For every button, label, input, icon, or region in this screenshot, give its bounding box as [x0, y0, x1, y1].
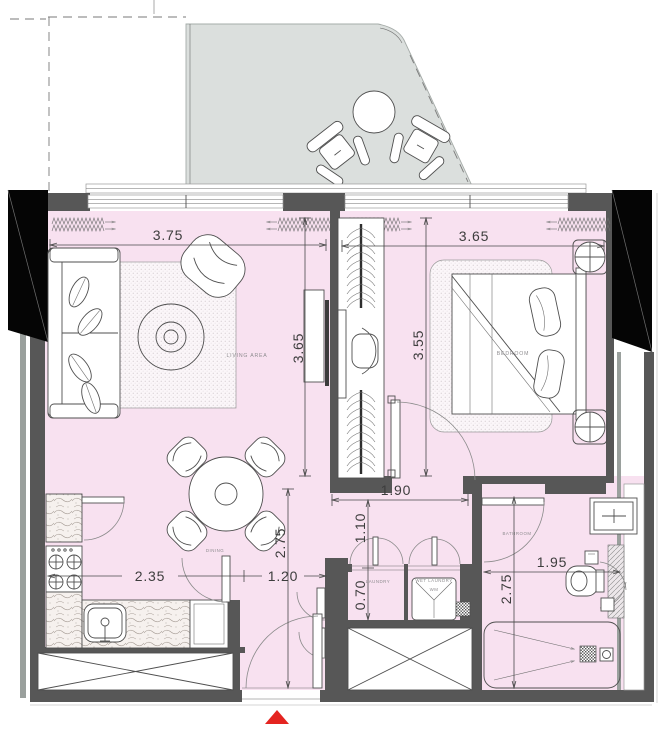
wardrobe [338, 218, 384, 478]
fridge [46, 494, 82, 542]
dim-hall-depth: 1.10 [352, 513, 368, 543]
terrace [186, 24, 474, 193]
dim-living-depth: 3.65 [290, 333, 306, 363]
room-label-wet-laundry: WET LAUNDRY [415, 578, 452, 583]
entry-arrow [265, 710, 289, 724]
sofa [48, 248, 120, 418]
dim-dining-depth: 2.75 [272, 528, 288, 558]
floor-plan-drawing: 3.75 3.65 3.65 3.55 1.90 1.10 0.70 2.75 … [0, 0, 660, 737]
vanity-sink [590, 498, 637, 534]
kitchen-counter [46, 592, 82, 648]
room-label-bathroom: BATHROOM [502, 531, 531, 536]
window-bedroom [345, 195, 568, 208]
room-label-laundry: LAUNDRY [366, 579, 390, 584]
window-sill [86, 184, 586, 193]
dim-kitchen-width: 2.35 [135, 568, 165, 584]
washing-machine [412, 578, 456, 620]
plot-boundary-dashed [10, 0, 186, 192]
headboard [576, 268, 586, 420]
stove [46, 546, 82, 592]
kitchen-sink [84, 604, 126, 642]
kitchen-cabinet [190, 600, 228, 648]
room-label-wm: WM [430, 587, 439, 592]
floor-plan: 3.75 3.65 3.65 3.55 1.90 1.10 0.70 2.75 … [0, 0, 660, 737]
room-label-living: LIVING AREA [226, 353, 267, 359]
dim-bathroom-width: 1.95 [537, 554, 567, 570]
dim-bedroom-width: 3.65 [459, 228, 489, 244]
dim-hall-width: 1.90 [381, 482, 411, 498]
room-label-dining: DINING [206, 548, 224, 553]
dim-laundry-depth: 0.70 [352, 580, 368, 610]
tv-console [304, 290, 329, 386]
window-living [88, 195, 283, 208]
terrace-table [353, 91, 395, 133]
room-label-bedroom: BEDROOM [497, 351, 529, 357]
dining-table [189, 457, 263, 531]
floor-drain [456, 602, 470, 616]
dim-bathroom-depth: 2.75 [498, 574, 514, 604]
shower-drain [580, 646, 596, 662]
dim-living-width: 3.75 [153, 227, 183, 243]
bed [452, 268, 586, 420]
dressing-desk [338, 310, 346, 398]
dim-wardrobe-depth: 3.55 [410, 330, 426, 360]
dim-entry-width: 1.20 [268, 568, 298, 584]
